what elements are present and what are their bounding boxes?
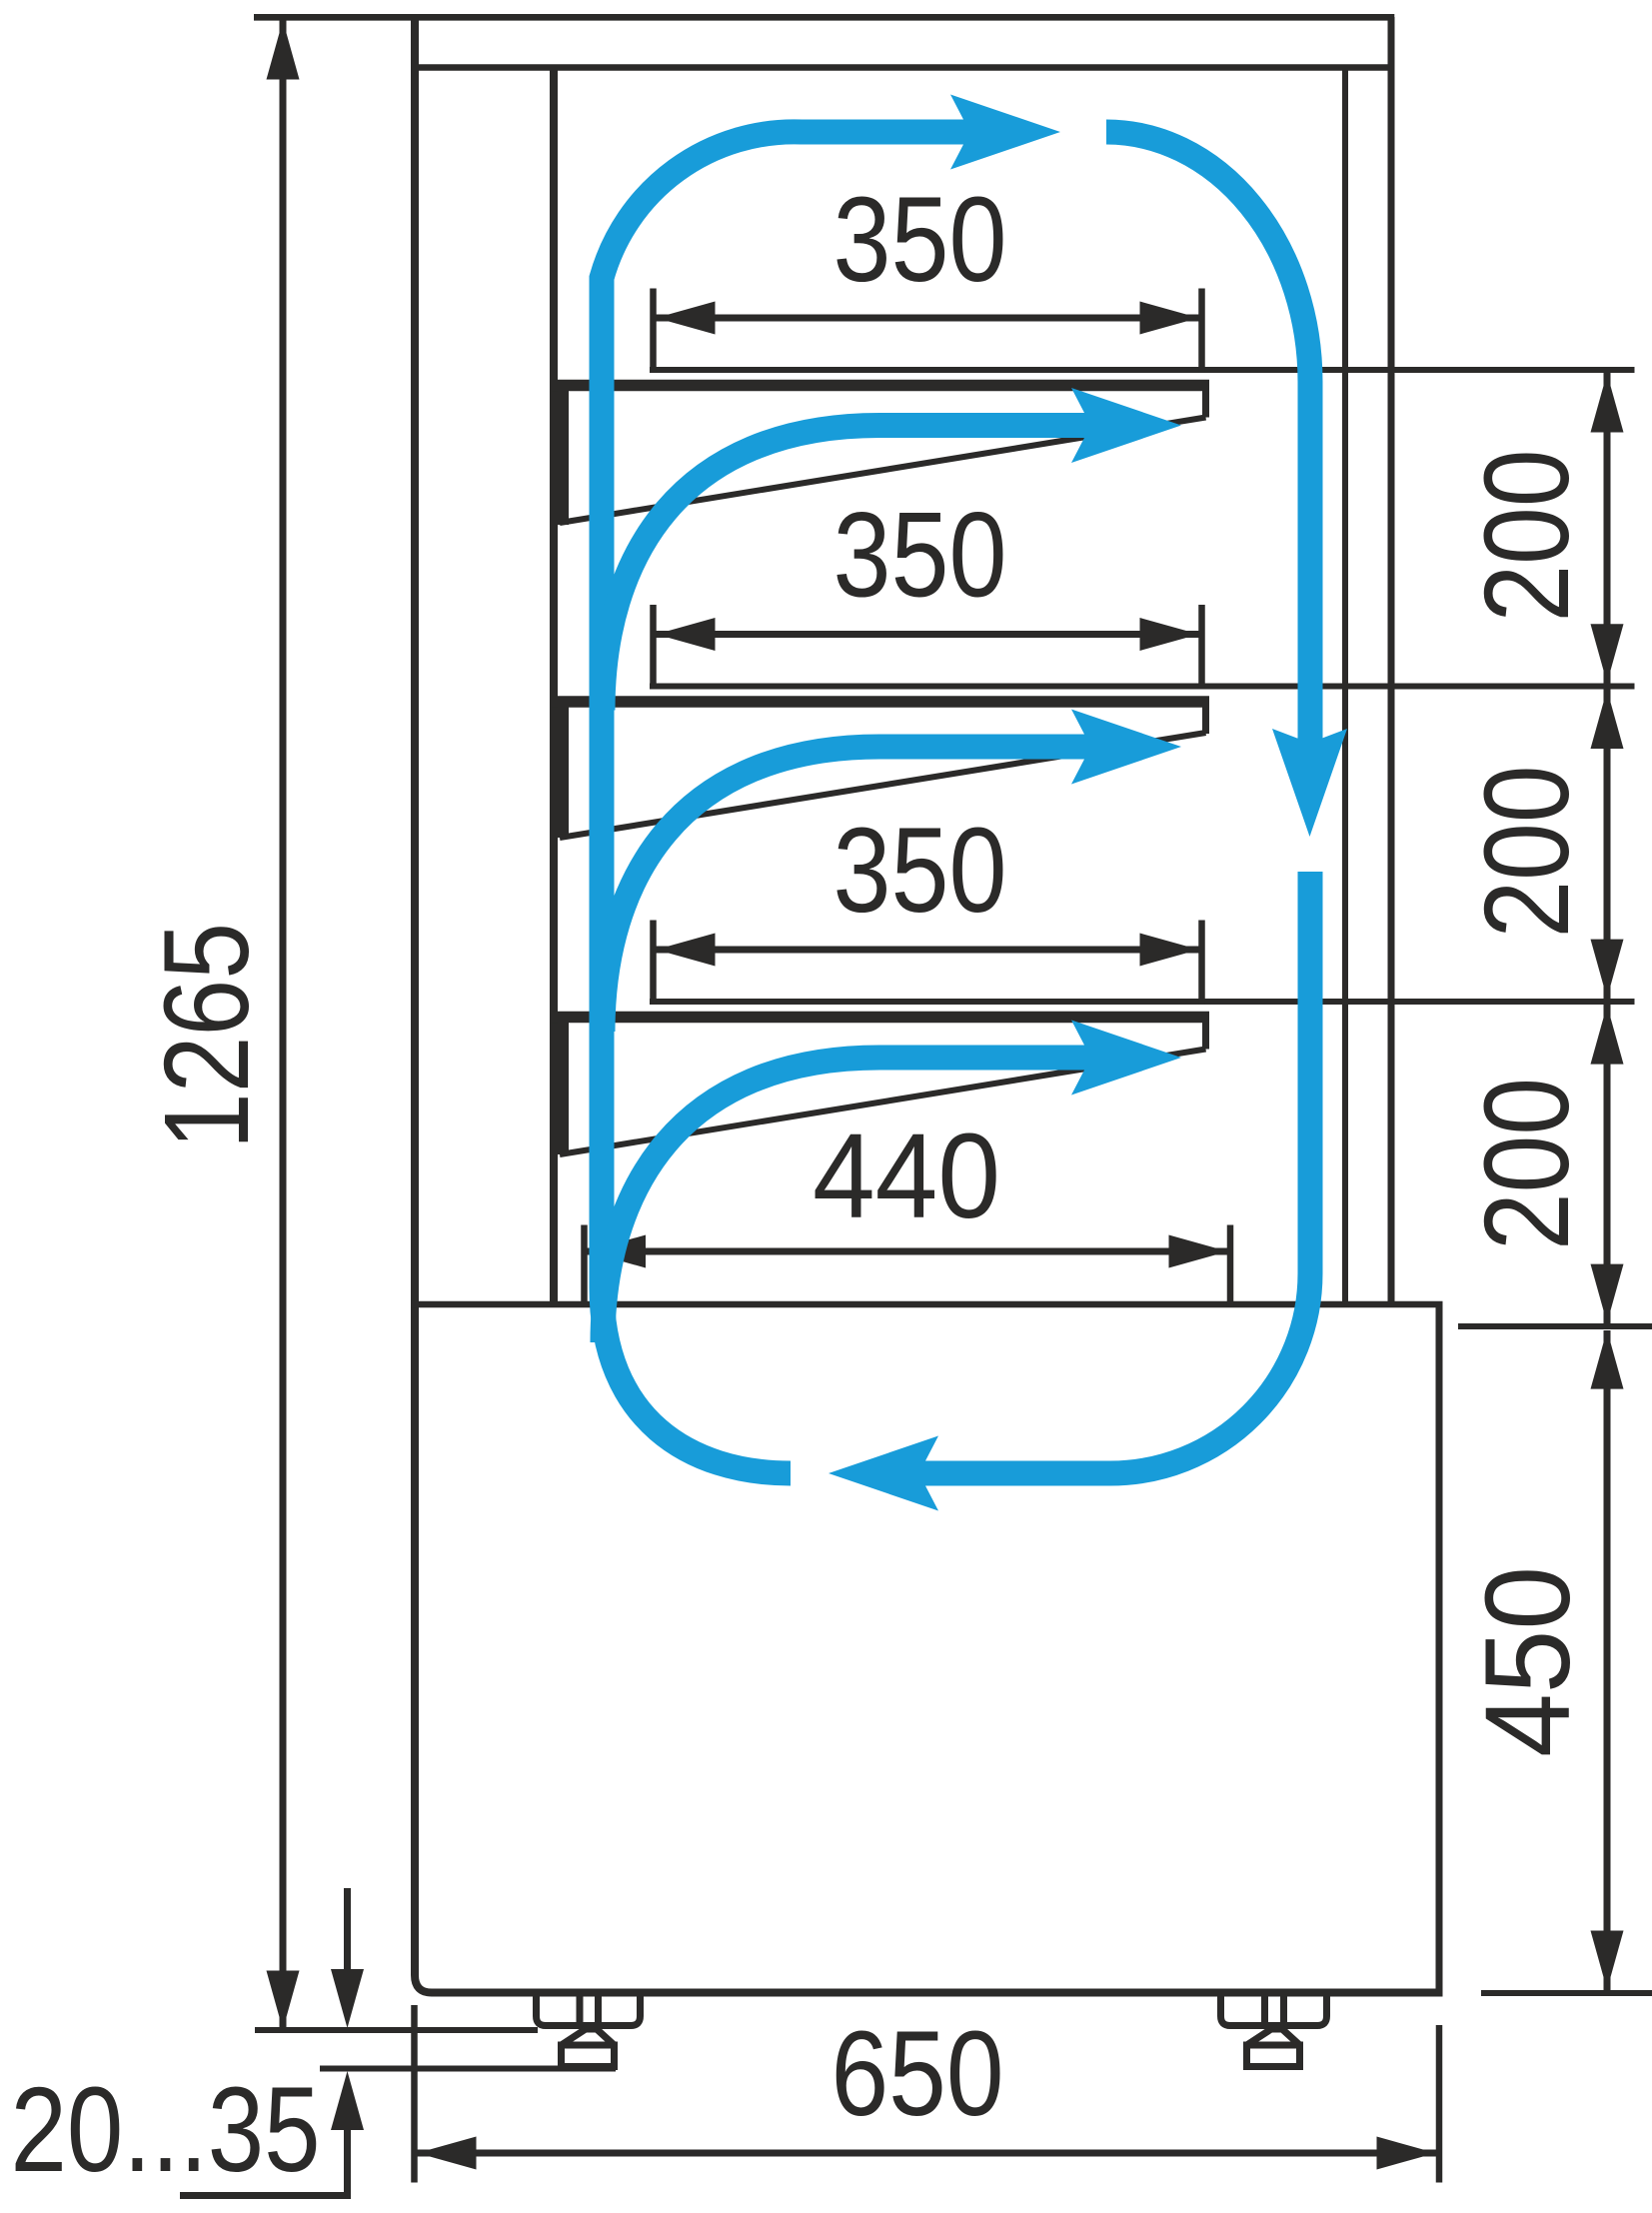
svg-text:350: 350: [833, 802, 1007, 938]
svg-text:440: 440: [813, 1107, 1000, 1243]
svg-text:350: 350: [833, 171, 1007, 307]
svg-text:650: 650: [831, 2005, 1004, 2141]
svg-text:450: 450: [1459, 1566, 1595, 1757]
svg-text:20...35: 20...35: [11, 2061, 321, 2197]
svg-text:200: 200: [1458, 450, 1594, 623]
svg-text:1265: 1265: [138, 923, 274, 1149]
svg-text:350: 350: [833, 487, 1007, 623]
svg-text:200: 200: [1458, 1078, 1594, 1250]
svg-text:200: 200: [1458, 766, 1594, 939]
